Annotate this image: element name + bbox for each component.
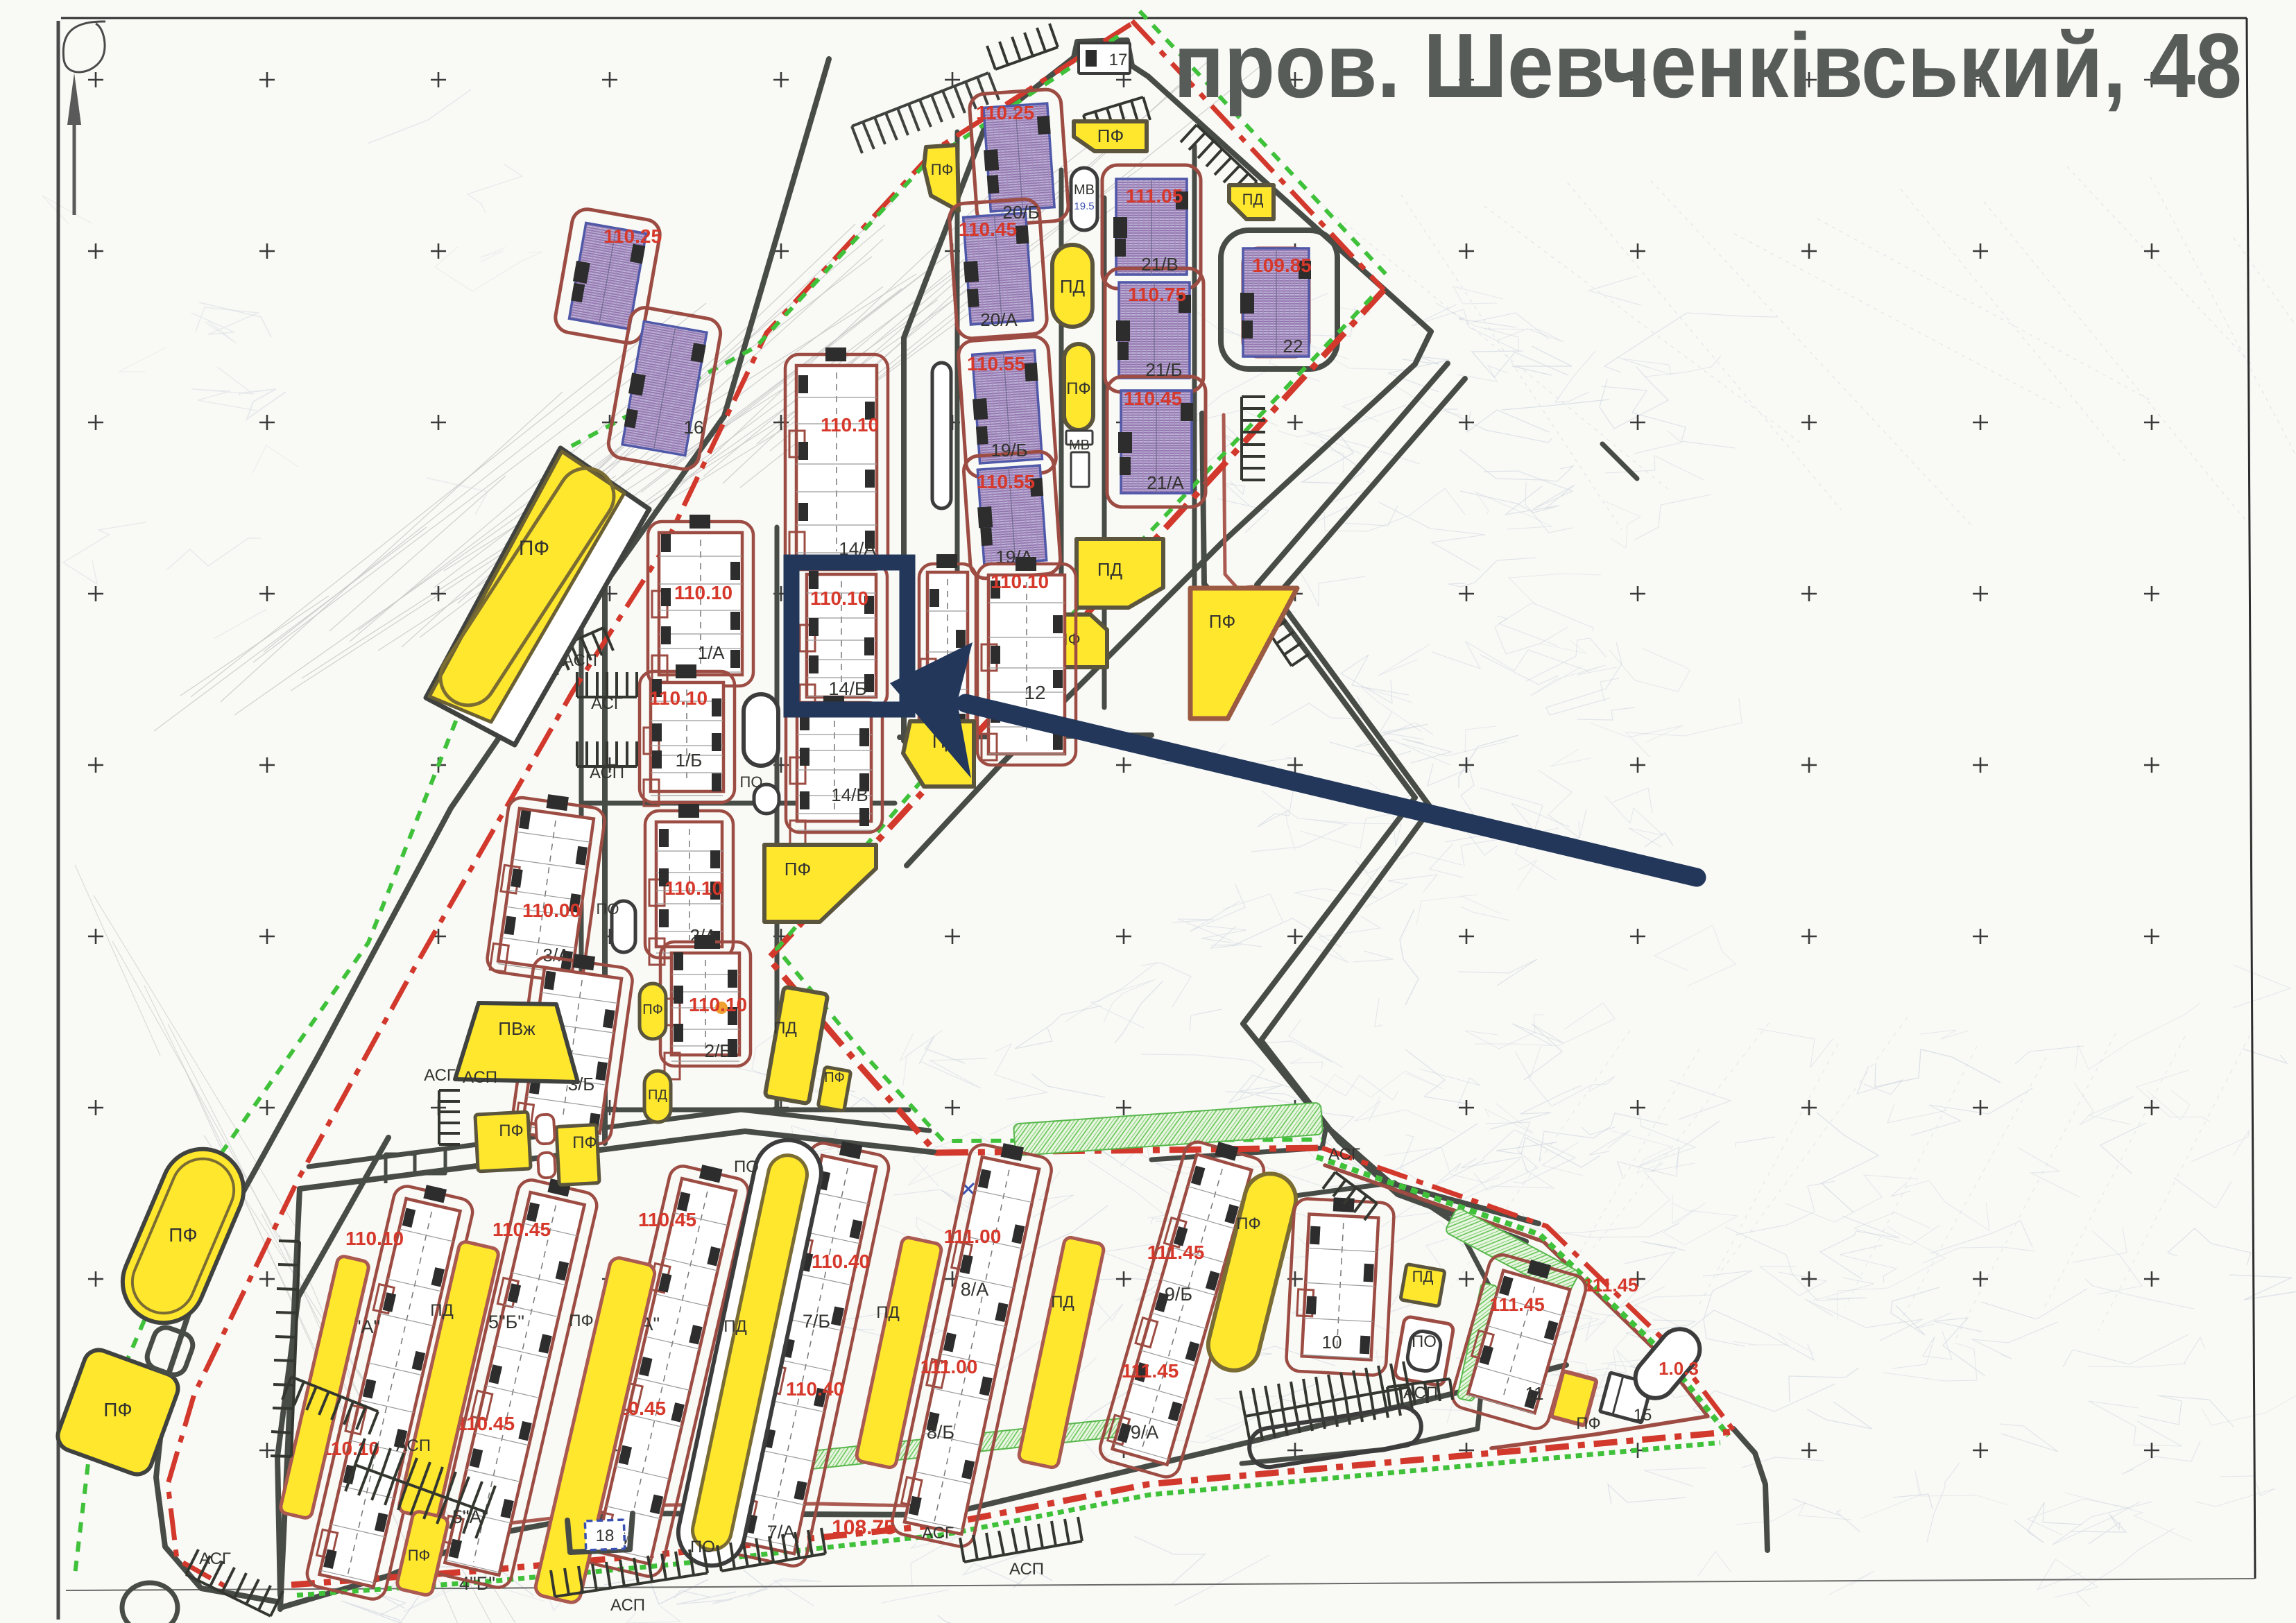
svg-text:АСГ: АСГ — [199, 1549, 231, 1568]
svg-text:АСП: АСП — [396, 1436, 431, 1455]
svg-text:АСГ: АСГ — [591, 694, 623, 713]
svg-text:110.45: 110.45 — [456, 1413, 515, 1434]
svg-text:ПФ: ПФ — [519, 537, 549, 560]
svg-text:ПФ: ПФ — [1066, 379, 1091, 398]
svg-text:110.55: 110.55 — [977, 471, 1035, 492]
svg-text:ПД: ПД — [1242, 191, 1264, 208]
svg-text:110.25: 110.25 — [976, 102, 1034, 123]
svg-text:ПВж: ПВж — [498, 1018, 536, 1039]
svg-text:ПД: ПД — [1060, 276, 1086, 297]
svg-text:19/Б: 19/Б — [991, 440, 1027, 461]
svg-text:АСГ: АСГ — [424, 1066, 456, 1085]
svg-text:7/А: 7/А — [767, 1522, 796, 1543]
svg-text:1/А: 1/А — [697, 642, 725, 663]
svg-text:ПО: ПО — [740, 773, 763, 791]
svg-text:110.10: 110.10 — [689, 994, 747, 1015]
svg-text:21/А: 21/А — [1147, 472, 1184, 493]
svg-text:20/А: 20/А — [980, 309, 1018, 330]
svg-text:110.00: 110.00 — [522, 900, 581, 921]
svg-text:МВ: МВ — [1069, 438, 1090, 453]
svg-text:ПД: ПД — [1412, 1268, 1434, 1285]
svg-text:9/Б: 9/Б — [1165, 1284, 1192, 1305]
svg-text:21/В: 21/В — [1141, 254, 1179, 275]
svg-text:3/А: 3/А — [542, 945, 570, 965]
svg-text:110.10: 110.10 — [810, 587, 868, 609]
svg-text:МВ: МВ — [1074, 182, 1095, 198]
svg-text:17: 17 — [1109, 51, 1128, 69]
svg-text:ПФ: ПФ — [1236, 1214, 1261, 1233]
svg-text:110.10: 110.10 — [345, 1228, 404, 1249]
svg-text:12: 12 — [1024, 682, 1045, 703]
svg-text:111.45: 111.45 — [1147, 1242, 1205, 1263]
svg-text:110.25: 110.25 — [603, 225, 662, 247]
svg-text:АСП: АСП — [1009, 1560, 1044, 1579]
svg-text:ПФ: ПФ — [1576, 1414, 1601, 1433]
svg-text:ПФ: ПФ — [931, 161, 954, 178]
svg-text:110.75: 110.75 — [1128, 284, 1186, 305]
svg-text:111.45: 111.45 — [1583, 1275, 1638, 1296]
svg-text:110.10: 110.10 — [665, 877, 723, 899]
svg-text:7/Б: 7/Б — [803, 1311, 830, 1332]
svg-text:110.10: 110.10 — [991, 571, 1049, 592]
svg-text:ПФ: ПФ — [785, 859, 811, 879]
svg-text:110.10: 110.10 — [821, 414, 879, 436]
svg-text:14/В: 14/В — [831, 784, 868, 805]
svg-text:АСГ: АСГ — [1328, 1145, 1360, 1164]
svg-text:АСГ: АСГ — [922, 1524, 954, 1543]
svg-text:ПФ: ПФ — [824, 1070, 845, 1085]
svg-text:ПД: ПД — [876, 1303, 900, 1322]
svg-text:108.75: 108.75 — [832, 1516, 896, 1539]
svg-text:ПФ: ПФ — [408, 1547, 431, 1564]
svg-text:1.0.3: 1.0.3 — [1659, 1358, 1699, 1379]
svg-text:2/Б: 2/Б — [705, 1040, 732, 1061]
svg-text:ПФ: ПФ — [103, 1399, 132, 1420]
svg-text:ПФ: ПФ — [569, 1312, 594, 1330]
svg-text:ПД: ПД — [1097, 559, 1123, 580]
svg-text:110.45: 110.45 — [638, 1209, 696, 1230]
svg-text:22: 22 — [1283, 336, 1303, 357]
svg-text:ПД: ПД — [723, 1317, 747, 1336]
svg-text:109.85: 109.85 — [1252, 255, 1312, 276]
svg-text:ПФ: ПФ — [642, 1002, 663, 1017]
svg-text:ПД: ПД — [773, 1019, 797, 1038]
svg-text:ПФ: ПФ — [169, 1224, 197, 1246]
svg-text:110.40: 110.40 — [786, 1378, 844, 1400]
svg-text:5"Б": 5"Б" — [488, 1312, 524, 1332]
svg-text:ПФ: ПФ — [572, 1133, 597, 1152]
svg-text:110.10: 110.10 — [674, 582, 733, 603]
svg-text:110.45: 110.45 — [1124, 388, 1182, 409]
svg-text:111.45: 111.45 — [1122, 1360, 1179, 1382]
svg-text:АСП: АСП — [610, 1596, 645, 1615]
svg-text:10: 10 — [1322, 1332, 1342, 1352]
svg-text:8/А: 8/А — [961, 1279, 989, 1300]
svg-text:ПФ: ПФ — [1209, 611, 1235, 632]
svg-text:110.55: 110.55 — [967, 353, 1025, 375]
svg-text:ПД: ПД — [430, 1301, 454, 1320]
svg-text:8/Б: 8/Б — [927, 1422, 954, 1443]
svg-text:19.5: 19.5 — [1074, 200, 1094, 212]
svg-text:ПФ: ПФ — [1097, 126, 1124, 146]
svg-text:ПО: ПО — [597, 900, 619, 918]
svg-text:16: 16 — [684, 417, 704, 438]
svg-text:1/Б: 1/Б — [676, 750, 703, 771]
svg-text:ПД: ПД — [648, 1088, 667, 1103]
svg-text:ПО: ПО — [734, 1158, 759, 1176]
svg-text:111.00: 111.00 — [944, 1226, 1002, 1247]
svg-text:18: 18 — [596, 1527, 615, 1545]
svg-text:ПФ: ПФ — [499, 1122, 524, 1140]
svg-text:110.45: 110.45 — [959, 218, 1017, 240]
svg-text:11: 11 — [1525, 1383, 1544, 1404]
svg-text:110.45: 110.45 — [492, 1219, 551, 1240]
svg-text:111.00: 111.00 — [920, 1356, 978, 1377]
svg-text:21/Б: 21/Б — [1145, 359, 1182, 380]
svg-text:110.40: 110.40 — [812, 1251, 870, 1272]
svg-text:АСП: АСП — [463, 1068, 497, 1087]
svg-text:110.10: 110.10 — [649, 687, 708, 709]
svg-text:15: 15 — [1634, 1406, 1652, 1425]
svg-text:пров. Шевченківський, 48: пров. Шевченківський, 48 — [1174, 15, 2242, 117]
svg-text:9/А: 9/А — [1131, 1422, 1159, 1443]
svg-text:ПД: ПД — [1051, 1293, 1074, 1312]
svg-text:ПО: ПО — [1412, 1332, 1437, 1351]
svg-text:АСП: АСП — [590, 764, 624, 782]
svg-text:111.45: 111.45 — [1489, 1294, 1545, 1315]
svg-text:111.05: 111.05 — [1126, 185, 1183, 207]
